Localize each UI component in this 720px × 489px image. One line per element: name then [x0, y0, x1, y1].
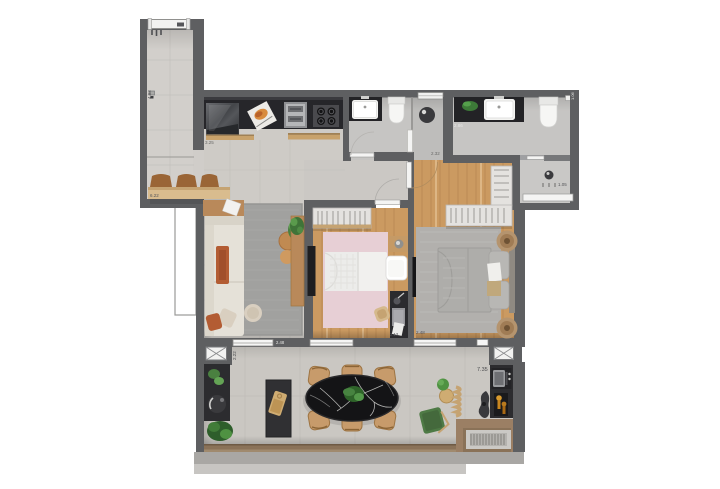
svg-text:2.48: 2.48: [276, 340, 285, 345]
svg-text:3.25: 3.25: [205, 140, 214, 145]
svg-text:2.22: 2.22: [232, 351, 237, 360]
svg-text:7.35: 7.35: [477, 367, 488, 373]
svg-text:4.03: 4.03: [147, 90, 152, 99]
svg-text:2.86: 2.86: [454, 123, 463, 128]
svg-text:1.05: 1.05: [558, 182, 567, 187]
svg-text:6.22: 6.22: [150, 193, 159, 198]
svg-text:2.13: 2.13: [390, 332, 399, 337]
svg-text:2.32: 2.32: [431, 151, 440, 156]
svg-text:1.06: 1.06: [570, 91, 575, 100]
svg-text:2.48: 2.48: [416, 330, 425, 335]
